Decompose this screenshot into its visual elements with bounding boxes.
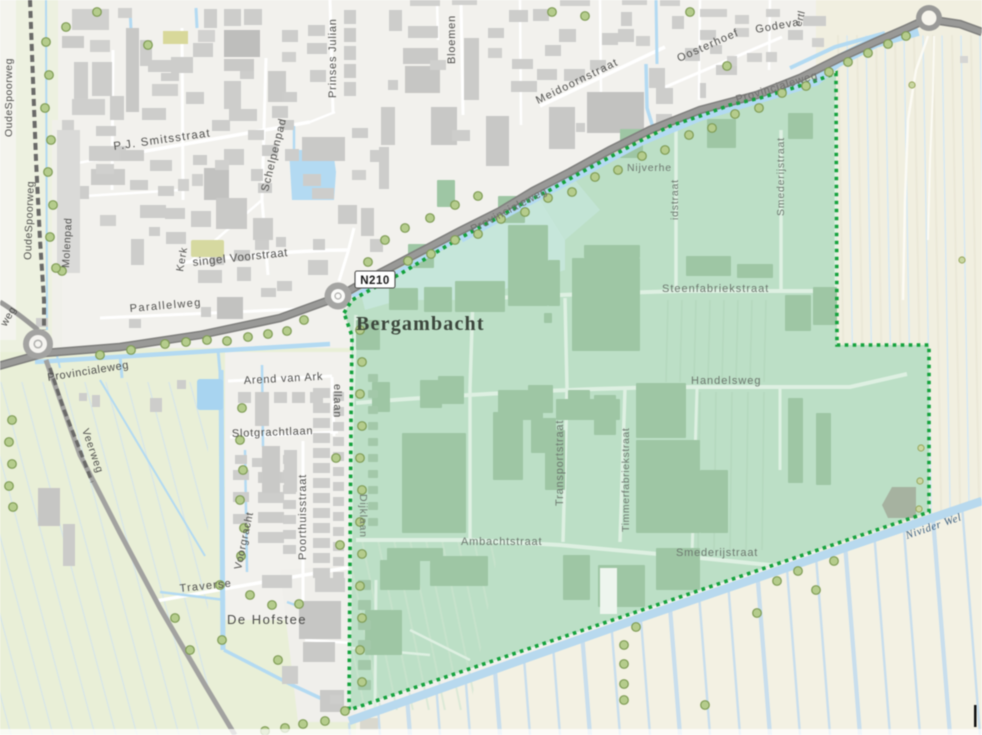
svg-text:Poorthuisstraat: Poorthuisstraat [297, 474, 309, 560]
svg-text:N210: N210 [360, 275, 390, 287]
svg-text:Ambachtstraat: Ambachtstraat [461, 536, 542, 548]
svg-text:Smederijstraat: Smederijstraat [775, 137, 787, 216]
svg-text:Steenfabriekstraat: Steenfabriekstraat [662, 283, 769, 295]
svg-text:Handelsweg: Handelsweg [691, 375, 762, 387]
svg-text:De Hofstee: De Hofstee [227, 612, 307, 627]
svg-text:ellaan: ellaan [331, 384, 343, 418]
svg-text:Bloemen: Bloemen [446, 15, 458, 64]
svg-text:Timmerfabriekstraat: Timmerfabriekstraat [620, 428, 632, 532]
svg-text:Nijverhe: Nijverhe [627, 162, 672, 174]
svg-text:Smederijstraat: Smederijstraat [676, 547, 758, 559]
svg-text:Dijklaan: Dijklaan [357, 494, 369, 538]
svg-text:Prinses Julian: Prinses Julian [327, 18, 339, 98]
svg-text:OudeSpoorweg: OudeSpoorweg [3, 58, 15, 137]
svg-text:Bergambacht: Bergambacht [356, 313, 485, 335]
svg-text:idstraat: idstraat [669, 179, 681, 220]
svg-text:Transportstraat: Transportstraat [554, 420, 566, 506]
